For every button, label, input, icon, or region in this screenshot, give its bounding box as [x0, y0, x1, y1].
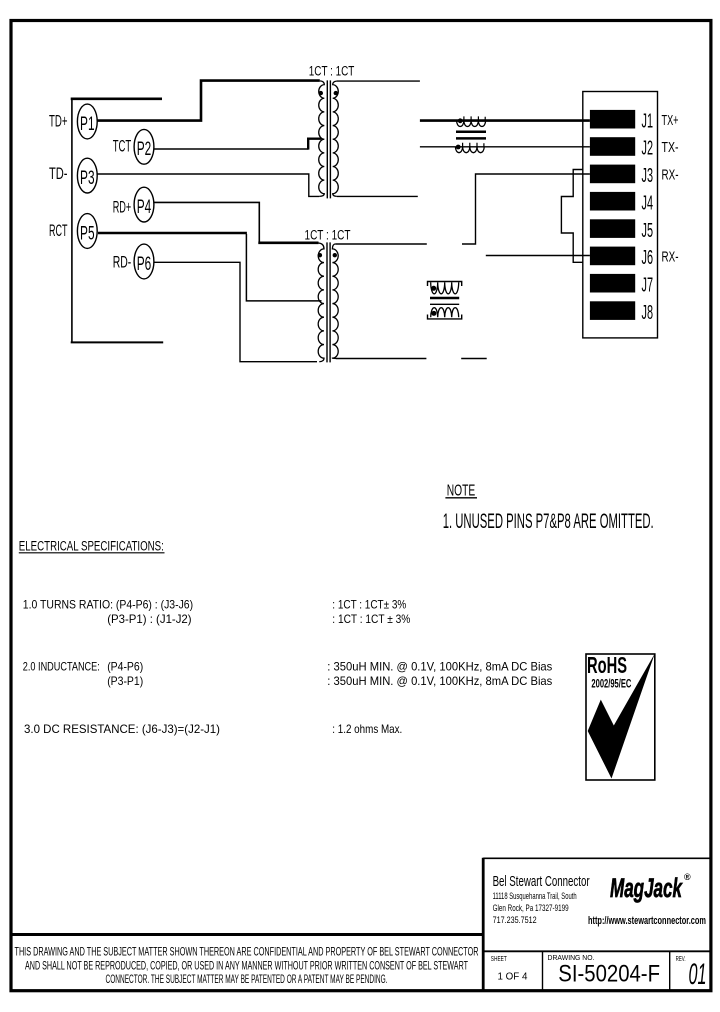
svg-text:Glen Rock, Pa 17327-9199: Glen Rock, Pa 17327-9199: [493, 903, 569, 914]
svg-text:NOTE: NOTE: [447, 482, 476, 499]
svg-text:11118 Susquehanna Trail, South: 11118 Susquehanna Trail, South: [493, 891, 577, 902]
svg-text:(P4-P6): (P4-P6): [107, 659, 143, 673]
svg-text:P6: P6: [137, 254, 152, 275]
svg-text:: 350uH MIN. @ 0.1V, 100KHz, 8: : 350uH MIN. @ 0.1V, 100KHz, 8mA DC Bias: [327, 674, 552, 688]
svg-text:TCT: TCT: [113, 137, 132, 156]
svg-text:TX+: TX+: [662, 112, 679, 129]
svg-text:P3: P3: [80, 168, 95, 189]
svg-text:MagJack: MagJack: [610, 873, 683, 903]
svg-text:http://www.stewartconnector.co: http://www.stewartconnector.com: [588, 915, 706, 927]
svg-text:THIS DRAWING AND THE SUBJECT M: THIS DRAWING AND THE SUBJECT MATTER SHOW…: [15, 944, 479, 958]
svg-text:J6: J6: [642, 247, 654, 269]
svg-text:RD+: RD+: [113, 198, 132, 217]
svg-text:CONNECTOR. THE SUBJECT MATTER: CONNECTOR. THE SUBJECT MATTER MAY BE PAT…: [106, 972, 388, 986]
svg-text:: 1CT : 1CT ± 3%: : 1CT : 1CT ± 3%: [332, 612, 410, 626]
svg-text:: 1CT : 1CT± 3%: : 1CT : 1CT± 3%: [332, 598, 406, 612]
svg-text:J8: J8: [642, 302, 654, 324]
svg-text:1CT : 1CT: 1CT : 1CT: [309, 64, 355, 79]
svg-text:RD-: RD-: [113, 253, 132, 272]
svg-text:01: 01: [689, 958, 707, 991]
svg-text:(P3-P1): (P3-P1): [107, 674, 143, 688]
svg-text:2.0 INDUCTANCE:: 2.0 INDUCTANCE:: [23, 659, 100, 673]
svg-text:RX-: RX-: [662, 249, 679, 266]
svg-text:J7: J7: [642, 274, 654, 296]
svg-text:1 OF 4: 1 OF 4: [498, 970, 528, 982]
svg-text:P1: P1: [80, 114, 95, 135]
svg-text:Bel Stewart Connector: Bel Stewart Connector: [493, 873, 590, 890]
svg-text:1CT : 1CT: 1CT : 1CT: [305, 227, 351, 242]
svg-text:TX-: TX-: [662, 139, 679, 156]
svg-text:SHEET: SHEET: [491, 954, 507, 963]
svg-text:J3: J3: [642, 165, 654, 187]
svg-text:P4: P4: [137, 197, 152, 218]
svg-text:SI-50204-F: SI-50204-F: [558, 960, 660, 987]
svg-text:AND SHALL NOT BE REPRODUCED, C: AND SHALL NOT BE REPRODUCED, COPIED, OR …: [25, 959, 468, 973]
svg-text:REV.: REV.: [676, 954, 686, 963]
svg-text:1. UNUSED PINS P7&P8 ARE OMITT: 1. UNUSED PINS P7&P8 ARE OMITTED.: [443, 509, 654, 533]
svg-text:RoHS: RoHS: [587, 652, 627, 678]
svg-text:J5: J5: [642, 220, 654, 242]
svg-text:J4: J4: [642, 192, 654, 214]
svg-text:3.0 DC RESISTANCE: (J6-J3)=(J2: 3.0 DC RESISTANCE: (J6-J3)=(J2-J1): [24, 722, 220, 736]
svg-text:TD-: TD-: [49, 164, 68, 183]
svg-text:: 350uH MIN. @ 0.1V, 100KHz, 8: : 350uH MIN. @ 0.1V, 100KHz, 8mA DC Bias: [327, 659, 552, 673]
svg-text:®: ®: [684, 872, 691, 882]
svg-text:ELECTRICAL SPECIFICATIONS:: ELECTRICAL SPECIFICATIONS:: [19, 538, 164, 553]
svg-text:J1: J1: [642, 110, 654, 132]
svg-text:RX-: RX-: [662, 167, 679, 184]
svg-text:2002/95/EC: 2002/95/EC: [591, 679, 631, 691]
svg-text:1.0 TURNS RATIO: (P4-P6) : (J3: 1.0 TURNS RATIO: (P4-P6) : (J3-J6): [23, 598, 193, 612]
svg-text:P5: P5: [80, 223, 95, 244]
svg-text:TD+: TD+: [49, 112, 68, 131]
svg-text:P2: P2: [137, 139, 152, 160]
svg-text:717.235.7512: 717.235.7512: [493, 915, 537, 926]
svg-text:RCT: RCT: [49, 221, 68, 240]
svg-text:(P3-P1) : (J1-J2): (P3-P1) : (J1-J2): [107, 612, 191, 626]
svg-text:J2: J2: [642, 138, 654, 160]
svg-text:: 1.2 ohms Max.: : 1.2 ohms Max.: [332, 722, 402, 736]
